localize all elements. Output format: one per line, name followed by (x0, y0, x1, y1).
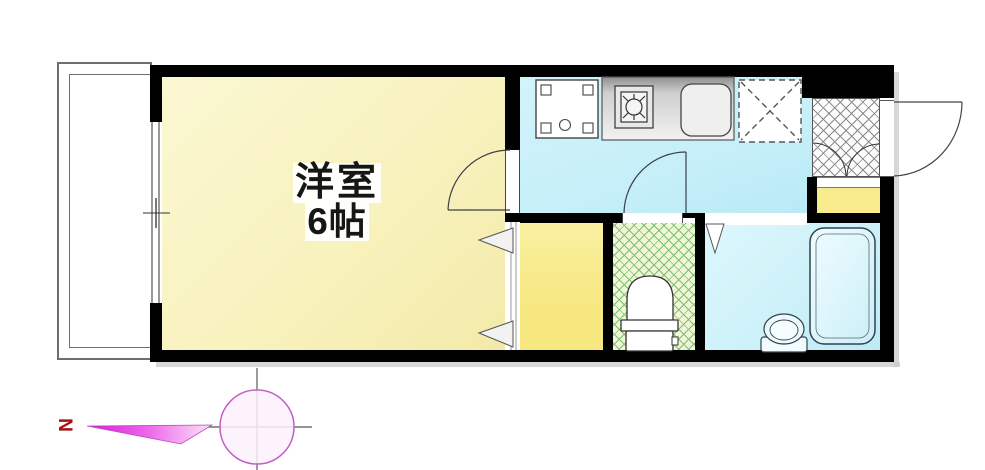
entry-door-icon (894, 102, 962, 176)
compass-circle (220, 390, 294, 464)
wall (802, 65, 894, 98)
toilet-door-opening (622, 213, 683, 223)
sliding-window (150, 122, 162, 303)
room-label: 洋室 6帖 (237, 163, 437, 241)
floor-plan: 洋室 6帖 N (0, 0, 985, 470)
wall (880, 177, 894, 362)
bathroom (705, 223, 880, 352)
toilet-room (613, 223, 695, 352)
wall (603, 213, 613, 362)
balcony-inner-line (69, 74, 152, 348)
wall (150, 350, 894, 362)
room-size: 6帖 (305, 203, 369, 241)
compass-rose (87, 368, 312, 470)
closet (520, 222, 603, 350)
kitchen (520, 77, 812, 213)
wall (807, 213, 894, 223)
wall (150, 65, 162, 122)
room-door-opening (505, 150, 520, 213)
wall (150, 65, 894, 77)
compass-north-arrow (87, 425, 212, 444)
wall (505, 65, 520, 150)
room-name: 洋室 (293, 163, 381, 203)
shoe-cabinet (817, 188, 880, 213)
plan-shadow-right (894, 72, 899, 367)
closet-door-track (505, 222, 520, 350)
plan-shadow-bottom (156, 362, 900, 367)
entry-door-opening (880, 100, 894, 177)
wall (807, 177, 817, 223)
north-label: N (53, 418, 75, 432)
wall (695, 213, 705, 362)
bathroom-door-opening (705, 216, 807, 225)
entrance (812, 98, 880, 177)
entrance-step (812, 177, 880, 188)
